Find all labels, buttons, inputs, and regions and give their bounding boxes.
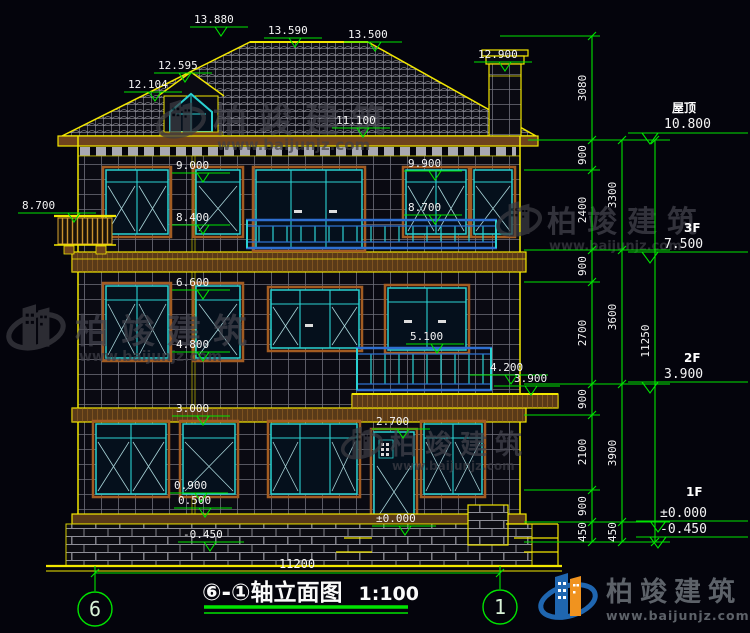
elevation-label: 0.500 (178, 494, 211, 507)
elevation-label: 0.900 (174, 479, 207, 492)
elevation-label: 13.590 (268, 24, 308, 37)
axis-number: 1 (494, 595, 506, 619)
dim-value: 3600 (606, 304, 619, 331)
watermark-brand: 柏竣建筑 (75, 312, 259, 352)
elevation-label: 5.100 (410, 330, 443, 343)
watermark-brand: 柏竣建筑 (547, 205, 707, 240)
watermark-url: www.baijunjz.com (392, 459, 515, 473)
elevation-label: 4.800 (176, 338, 209, 351)
elevation-label: 12.900 (478, 48, 518, 61)
elevation-label: -0.450 (183, 528, 223, 541)
side-canopy (352, 394, 558, 408)
band-hatch (72, 252, 526, 272)
elevation-label: 8.700 (408, 201, 441, 214)
watermark-brand: 柏竣建筑 (390, 429, 530, 461)
dim-value: 2400 (576, 197, 589, 224)
canopy-hatch (352, 394, 558, 408)
elevation-label: 6.600 (176, 276, 209, 289)
drawing-title: ⑥-①轴立面图1:100 (202, 579, 419, 613)
dim-value: 2700 (576, 320, 589, 347)
elevation-label: 13.880 (194, 13, 234, 26)
elevation-label: 12.595 (158, 59, 198, 72)
dim-value: 900 (576, 389, 589, 409)
dim-value: 3300 (606, 182, 619, 209)
level-name: 1F (686, 485, 703, 499)
level-name: 2F (684, 351, 701, 365)
dim-value: 900 (576, 256, 589, 276)
level-elevation: 3.900 (664, 367, 703, 382)
level-elevation: ±0.000 (660, 506, 707, 521)
elevation-label: 9.900 (408, 157, 441, 170)
elevation-label: 3.000 (176, 402, 209, 415)
watermark-url: www.baijunjz.com (217, 136, 370, 154)
level-name: 屋顶 (672, 101, 696, 115)
dim-value: 2100 (576, 439, 589, 466)
balcony-body (58, 218, 112, 244)
elevation-label: ±0.000 (376, 512, 416, 525)
chimney (482, 50, 528, 136)
footer-url: www.baijunjz.com (606, 608, 750, 623)
elevation-label: 13.500 (348, 28, 388, 41)
elevation-label: 3.900 (514, 372, 547, 385)
elevation-label: 2.700 (376, 415, 409, 428)
dim-value: 450 (576, 522, 589, 542)
dim-value: 3080 (576, 75, 589, 102)
balcony-2f (356, 348, 492, 390)
cad-elevation-drawing: 柏竣建筑 www.baijunjz.com 柏竣建筑 www.baijunjz.… (0, 0, 750, 633)
level-elevation: -0.450 (660, 522, 707, 537)
logo-tower-blue (555, 573, 568, 618)
title-text: ⑥-①轴立面图1:100 (202, 579, 419, 606)
axis-number: 6 (89, 597, 101, 621)
railing-posts (356, 354, 492, 384)
elevation-label: 12.104 (128, 78, 168, 91)
level-elevation: 10.800 (664, 117, 711, 132)
overall-width-dim: 11200 (279, 557, 315, 571)
brick-pedestal (468, 505, 508, 545)
elevation-label: 11.100 (336, 114, 376, 127)
level-elevation: 7.500 (664, 237, 703, 252)
dim-value: 450 (606, 522, 619, 542)
dim-value: 3900 (606, 440, 619, 467)
base-band (72, 514, 526, 524)
elevation-label: 9.000 (176, 159, 209, 172)
elevation-label: 8.400 (176, 211, 209, 224)
floor-band-3f-2f (72, 252, 526, 272)
overall-height-dim: 11250 (639, 324, 652, 357)
dim-value: 900 (576, 145, 589, 165)
logo-tower-orange (570, 576, 581, 616)
footer-brand: 柏竣建筑 (606, 576, 742, 608)
drawing-canvas: 柏竣建筑 www.baijunjz.com 柏竣建筑 www.baijunjz.… (0, 0, 750, 633)
dim-value: 900 (576, 496, 589, 516)
railing-posts (246, 226, 497, 242)
level-name: 3F (684, 221, 701, 235)
chimney-body (489, 64, 521, 136)
elevation-label: 8.700 (22, 199, 55, 212)
